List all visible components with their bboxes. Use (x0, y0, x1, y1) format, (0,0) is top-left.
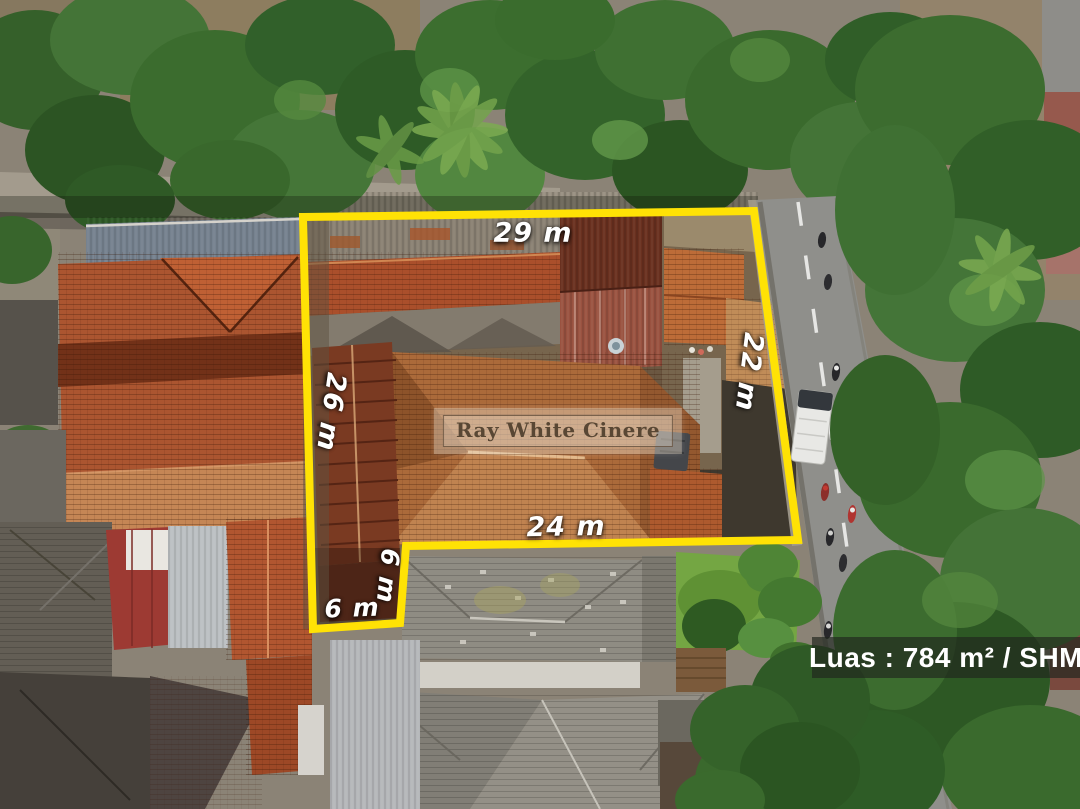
photo-scene (0, 0, 1080, 809)
watermark: Ray White Cinere (434, 408, 682, 454)
dimension-label-top: 29 m (493, 218, 572, 249)
dimension-label-notch-bottom: 6 m (324, 593, 380, 624)
dimension-label-bottom: 24 m (526, 511, 606, 543)
watermark-text: Ray White Cinere (443, 415, 673, 447)
aerial-photo: 29 m 22 m 26 m 24 m 6 m 6 m Ray White Ci… (0, 0, 1080, 809)
area-badge: Luas : 784 m² / SHM (812, 637, 1080, 678)
